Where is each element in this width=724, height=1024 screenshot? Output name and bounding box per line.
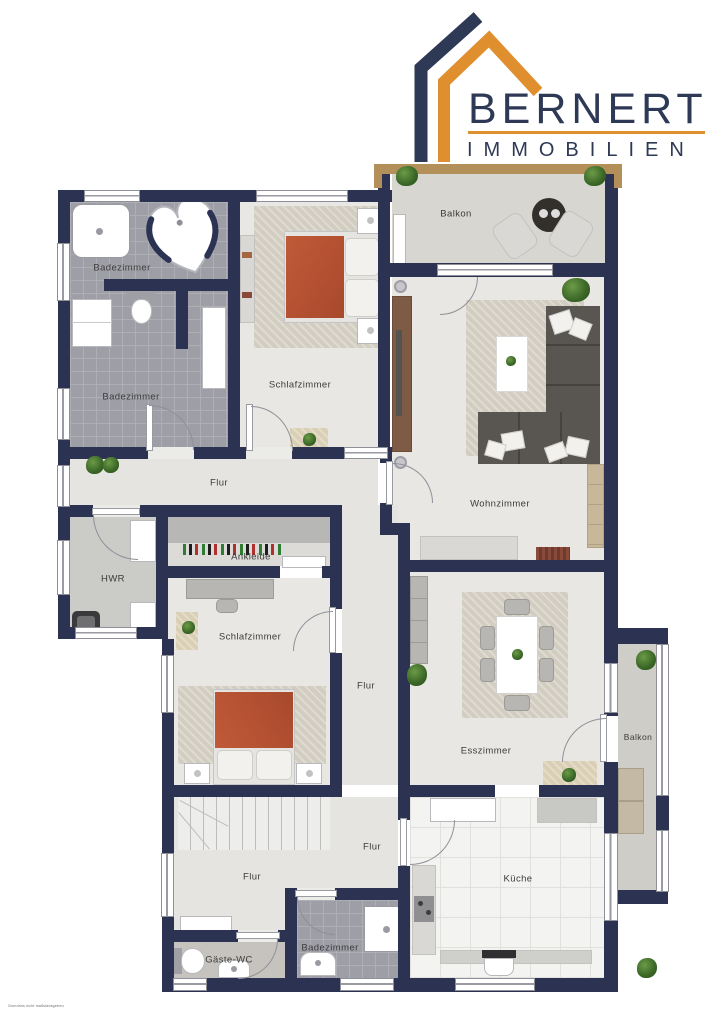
- wall: [330, 653, 342, 790]
- door-leaf: [400, 818, 407, 866]
- window: [84, 190, 140, 202]
- window: [161, 853, 174, 917]
- room-label-schlafzimmer-top: Schlafzimmer: [269, 380, 331, 390]
- balcony-railing: [614, 164, 622, 188]
- window: [256, 190, 348, 202]
- dining-chair: [480, 658, 495, 682]
- room-label-esszimmer: Esszimmer: [461, 746, 512, 756]
- nightstand-knob: [306, 770, 313, 777]
- plant-icon: [637, 958, 657, 978]
- wall: [285, 900, 297, 978]
- wc-sink-drain-icon: [231, 966, 237, 972]
- plant-icon: [636, 650, 656, 670]
- wall: [140, 505, 342, 517]
- door-gap: [495, 785, 539, 797]
- wall: [398, 866, 410, 978]
- floor-ankleide-closet: [168, 517, 330, 543]
- wall-light: [394, 280, 407, 293]
- window: [75, 627, 137, 639]
- pillow: [256, 750, 292, 780]
- dresser-items: [242, 292, 252, 298]
- kitchen-counter-top-right: [537, 798, 597, 823]
- room-label-kueche: Küche: [504, 874, 533, 884]
- plant-icon: [584, 166, 606, 186]
- nightstand-knob: [367, 217, 374, 224]
- room-label-wohnzimmer: Wohnzimmer: [470, 499, 530, 509]
- room-label-flur-upper: Flur: [210, 478, 228, 488]
- balcony-railing-glass: [656, 830, 669, 892]
- window: [455, 978, 535, 991]
- wall: [398, 523, 410, 785]
- floor-plan-page: Badezimmer Badezimmer Schlafzimmer Balko…: [0, 0, 724, 1024]
- toilet: [181, 948, 205, 974]
- plant-icon: [103, 457, 119, 473]
- wall: [398, 797, 410, 820]
- floor-flur-mid: [342, 505, 398, 785]
- desk: [186, 579, 274, 599]
- wall: [162, 930, 238, 942]
- wall: [228, 190, 240, 459]
- tv-sideboard: [392, 296, 412, 452]
- plant-icon: [396, 166, 418, 186]
- logo-divider: [468, 131, 705, 134]
- bookshelf: [587, 464, 604, 548]
- heart-bathtub: [138, 192, 230, 280]
- room-label-balkon-right: Balkon: [624, 733, 652, 742]
- wall: [162, 785, 342, 797]
- stove-burner-icon: [426, 910, 431, 915]
- wall: [398, 785, 495, 797]
- room-label-badezimmer-bottom: Badezimmer: [301, 943, 358, 953]
- wall: [322, 566, 330, 578]
- plant-icon: [562, 768, 576, 782]
- toilet: [131, 299, 152, 324]
- dresser-items: [242, 252, 252, 258]
- logo-subtitle-text: IMMOBILIEN: [467, 140, 695, 160]
- balcony-cup: [551, 209, 560, 218]
- fine-print: Grundriss nicht maßstabsgetreu: [8, 1004, 64, 1008]
- wall: [618, 890, 668, 904]
- room-label-badezimmer-left: Badezimmer: [102, 392, 159, 402]
- kitchen-sink: [484, 958, 514, 976]
- balcony-sliding-door: [437, 264, 553, 276]
- balcony-railing-glass: [656, 644, 669, 796]
- kitchen-counter-bottom: [440, 950, 592, 964]
- dining-shelf: [410, 576, 428, 664]
- bed-blanket: [286, 236, 344, 318]
- plant-icon: [562, 278, 590, 302]
- window: [604, 833, 618, 921]
- bath-shelf: [72, 299, 112, 347]
- plant-icon: [86, 456, 104, 474]
- wall: [156, 517, 168, 627]
- dining-chair: [539, 658, 554, 682]
- room-label-flur-lower: Flur: [243, 872, 261, 882]
- stairs: [178, 797, 330, 850]
- plant-icon: [407, 664, 427, 686]
- dresser: [240, 235, 255, 323]
- balcony-cup: [539, 209, 548, 218]
- plant-icon: [182, 621, 195, 634]
- window: [161, 655, 174, 713]
- shower-drain-icon: [383, 926, 390, 933]
- room-label-flur-mid: Flur: [357, 681, 375, 691]
- wall: [618, 628, 668, 644]
- dining-chair: [504, 695, 530, 711]
- wall: [104, 279, 240, 291]
- wall: [539, 785, 606, 797]
- window: [340, 978, 394, 991]
- room-label-schlafzimmer-mid: Schlafzimmer: [219, 632, 281, 642]
- wall: [410, 560, 604, 572]
- stove-burner-icon: [418, 901, 423, 906]
- radiator: [536, 547, 570, 560]
- wall: [58, 447, 148, 459]
- door-leaf: [295, 890, 337, 897]
- dining-chair: [480, 626, 495, 650]
- window: [57, 243, 70, 301]
- bath-cabinet: [202, 307, 226, 389]
- window: [604, 663, 618, 713]
- shower-drain-icon: [96, 228, 103, 235]
- tv: [396, 330, 402, 416]
- window: [344, 447, 388, 459]
- kitchen-sink-faucet: [482, 950, 516, 958]
- room-label-gaeste-wc: Gäste-WC: [205, 955, 253, 965]
- kitchen-counter-top: [430, 798, 496, 822]
- wardrobe-dresser: [282, 556, 326, 568]
- balcony-railing: [374, 164, 382, 188]
- dining-chair: [539, 626, 554, 650]
- room-label-balkon-top: Balkon: [440, 209, 471, 219]
- room-label-ankleide: Ankleide: [231, 552, 271, 562]
- desk-chair: [216, 599, 238, 613]
- pillow: [345, 279, 379, 317]
- wall: [378, 174, 390, 447]
- pillow: [345, 238, 379, 276]
- door-leaf: [386, 461, 393, 505]
- logo-brand-text: BERNERT: [468, 88, 708, 131]
- wall: [656, 796, 669, 830]
- balcony-shelf: [393, 214, 406, 266]
- lowboard: [420, 536, 518, 560]
- table-decor-icon: [506, 356, 516, 366]
- pillow: [217, 750, 253, 780]
- room-label-flur-right: Flur: [363, 842, 381, 852]
- wall: [330, 505, 342, 609]
- wall: [168, 566, 280, 578]
- plant-icon: [303, 433, 316, 446]
- bath-shelf-divider: [72, 322, 112, 323]
- window: [57, 465, 70, 507]
- balcony-shelf: [618, 768, 644, 834]
- room-label-hwr: HWR: [101, 574, 125, 584]
- door-leaf: [92, 508, 140, 515]
- nightstand-knob: [194, 770, 201, 777]
- bed-blanket: [215, 692, 293, 748]
- wall: [176, 291, 188, 349]
- wall: [335, 888, 410, 900]
- window: [173, 978, 207, 991]
- wall: [194, 447, 246, 459]
- bath-sink-drain-icon: [315, 960, 321, 966]
- door-leaf: [236, 932, 280, 939]
- table-decor-icon: [512, 649, 523, 660]
- room-label-badezimmer-top: Badezimmer: [93, 263, 150, 273]
- window: [57, 540, 70, 595]
- dining-chair: [504, 599, 530, 615]
- nightstand-knob: [367, 327, 374, 334]
- stove: [414, 896, 434, 922]
- window: [57, 388, 70, 440]
